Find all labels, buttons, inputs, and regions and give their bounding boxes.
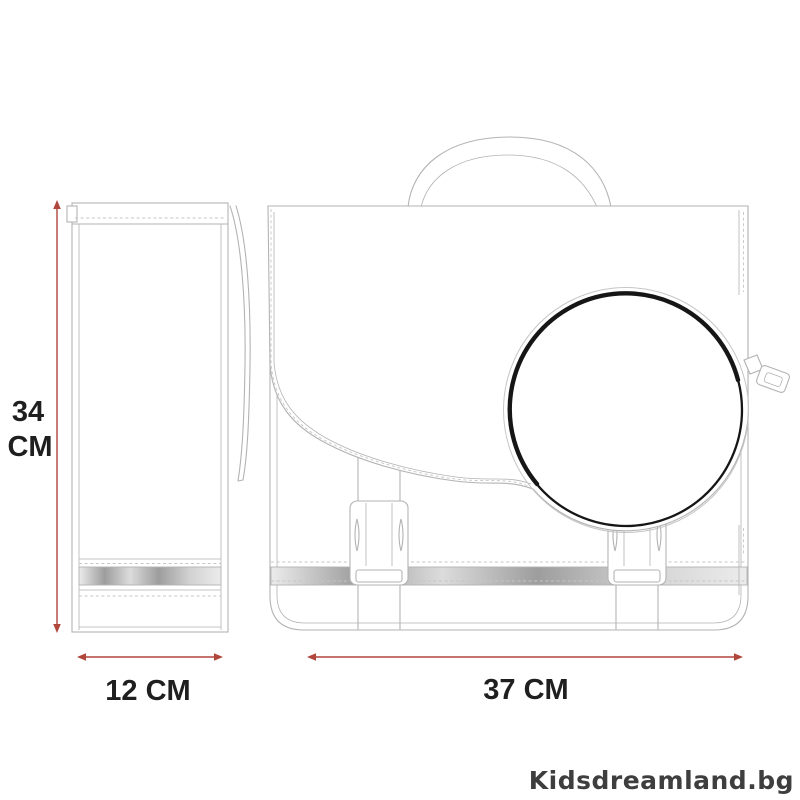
side-flap-tab xyxy=(67,206,77,222)
top-handle xyxy=(408,137,611,207)
left-buckle-right-slot xyxy=(399,519,403,551)
zipper-pull-icon xyxy=(744,355,791,394)
left-buckle-bottom-slot xyxy=(356,570,402,582)
left-buckle-left-slot xyxy=(355,519,359,551)
bag-dimension-diagram: 34 CM 12 CM 37 CM Kidsdreamland.bg xyxy=(0,0,800,800)
width-label: 37 CM xyxy=(483,674,568,706)
right-buckle-bottom-slot xyxy=(614,570,660,582)
arrowhead-right-icon xyxy=(734,653,743,661)
side-strap-tip xyxy=(238,480,243,481)
diagram-canvas: 34 CM 12 CM 37 CM Kidsdreamland.bg xyxy=(0,0,800,800)
arrowhead-left-icon xyxy=(307,653,316,661)
handle-outer-line xyxy=(408,137,611,207)
arrowhead-left-icon xyxy=(77,653,86,661)
height-dimension: 34 CM xyxy=(7,200,60,633)
side-view xyxy=(67,203,250,632)
height-unit-label: CM xyxy=(7,431,52,463)
arrowhead-down-icon xyxy=(53,624,61,633)
arrowhead-up-icon xyxy=(53,200,61,209)
watermark-text: Kidsdreamland.bg xyxy=(529,766,794,795)
side-strap-outer-line xyxy=(230,206,245,481)
front-view xyxy=(268,137,791,630)
side-strap-inner-line xyxy=(236,206,250,480)
arrowhead-right-icon xyxy=(214,653,223,661)
height-value-label: 34 xyxy=(12,396,44,428)
width-dimension: 37 CM xyxy=(307,653,743,706)
front-reflective-strip xyxy=(271,567,747,585)
side-reflective-strip xyxy=(79,567,221,585)
depth-dimension: 12 CM xyxy=(77,653,223,707)
depth-label: 12 CM xyxy=(105,675,190,707)
zipper-pull-body xyxy=(755,364,790,393)
